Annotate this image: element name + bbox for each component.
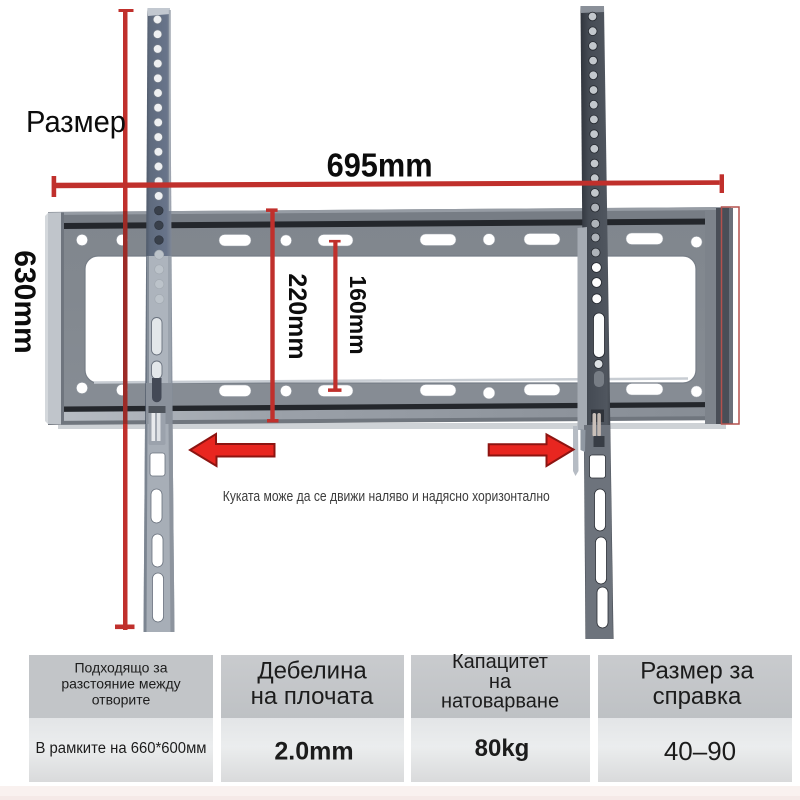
svg-text:40–90: 40–90 [664, 736, 736, 766]
svg-text:на плочата: на плочата [251, 683, 374, 710]
svg-text:отворите: отворите [92, 692, 151, 708]
svg-text:695mm: 695mm [327, 147, 433, 184]
svg-text:натоварване: натоварване [441, 691, 559, 713]
svg-text:В рамките на 660*600мм: В рамките на 660*600мм [36, 740, 207, 757]
svg-text:Капацитет: Капацитет [452, 651, 548, 673]
svg-text:Размер: Размер [26, 104, 126, 139]
svg-text:160mm: 160mm [345, 275, 371, 354]
svg-text:Подходящо за: Подходящо за [74, 660, 167, 676]
svg-text:Дебелина: Дебелина [257, 658, 367, 685]
svg-text:2.0mm: 2.0mm [274, 738, 353, 766]
svg-text:220mm: 220mm [283, 273, 311, 359]
svg-text:80kg: 80kg [475, 735, 530, 762]
svg-text:разстояние между: разстояние между [61, 676, 180, 692]
svg-text:справка: справка [653, 683, 742, 710]
svg-text:Размер за: Размер за [640, 658, 754, 685]
svg-text:Куката може да се движи наляво: Куката може да се движи наляво и надясно… [223, 489, 550, 505]
svg-text:630mm: 630mm [8, 250, 41, 353]
